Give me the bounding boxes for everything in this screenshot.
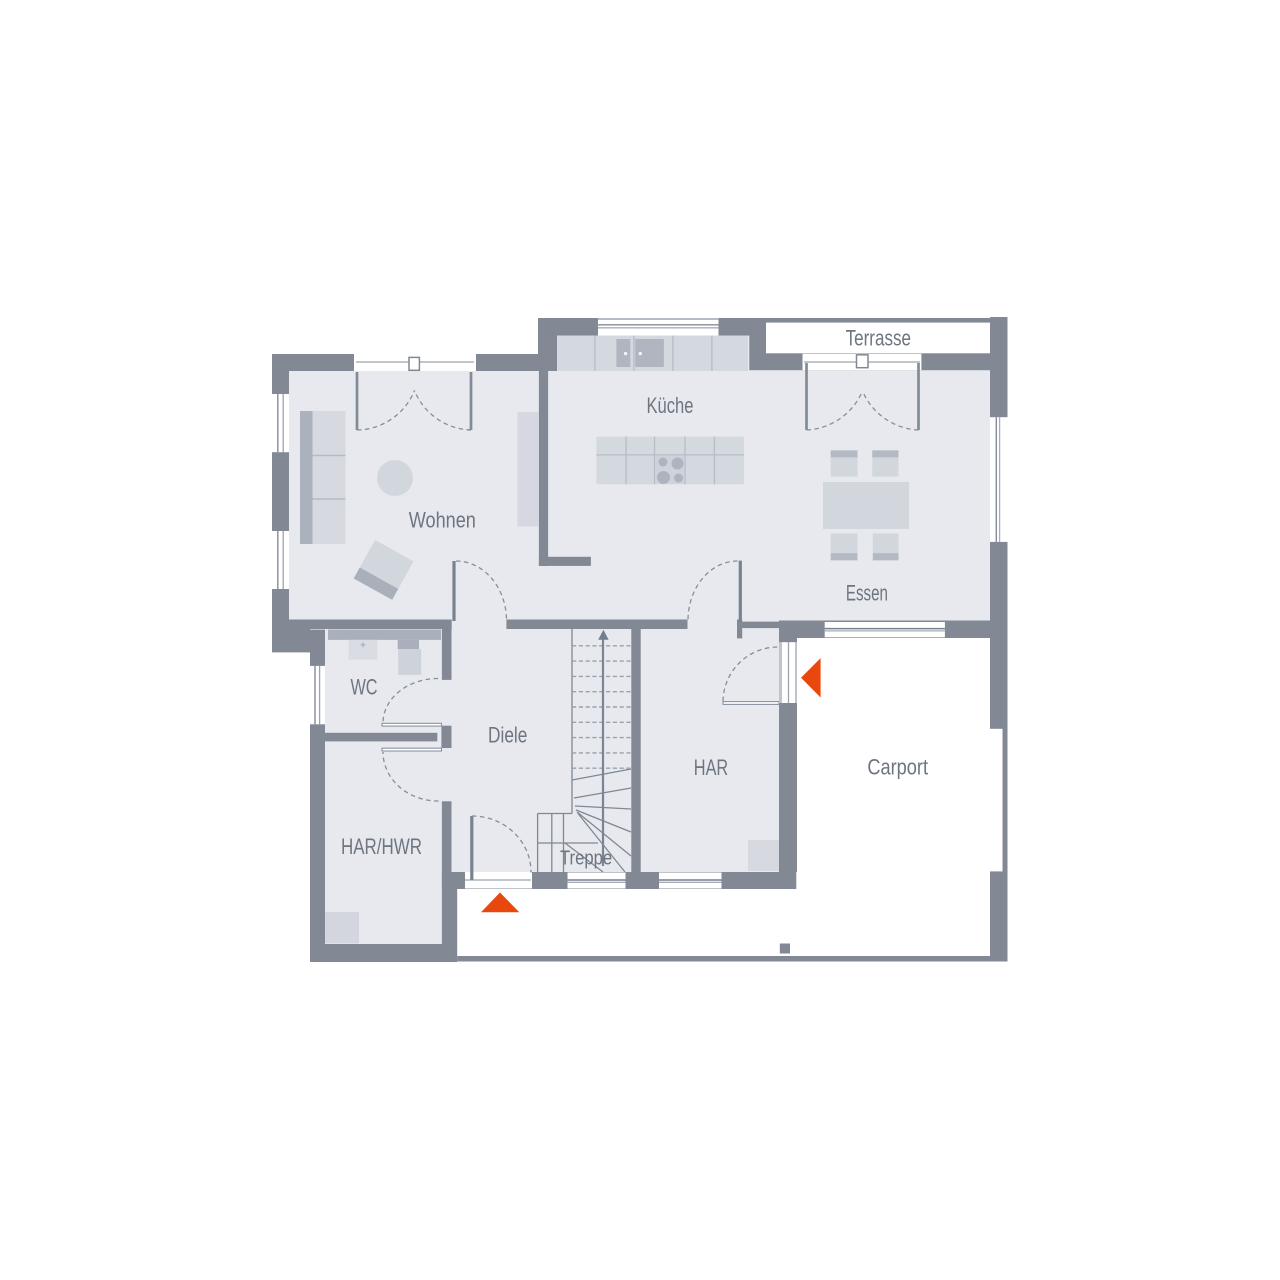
svg-text:HAR: HAR: [694, 755, 728, 780]
svg-text:Wohnen: Wohnen: [409, 508, 476, 533]
svg-text:Essen: Essen: [846, 580, 888, 605]
svg-text:Küche: Küche: [647, 393, 694, 418]
svg-text:WC: WC: [350, 674, 377, 699]
svg-text:Carport: Carport: [867, 755, 928, 780]
svg-text:Terrasse: Terrasse: [846, 326, 911, 351]
svg-text:Diele: Diele: [488, 722, 527, 747]
svg-text:HAR/HWR: HAR/HWR: [341, 834, 422, 859]
svg-text:Treppe: Treppe: [560, 848, 612, 870]
